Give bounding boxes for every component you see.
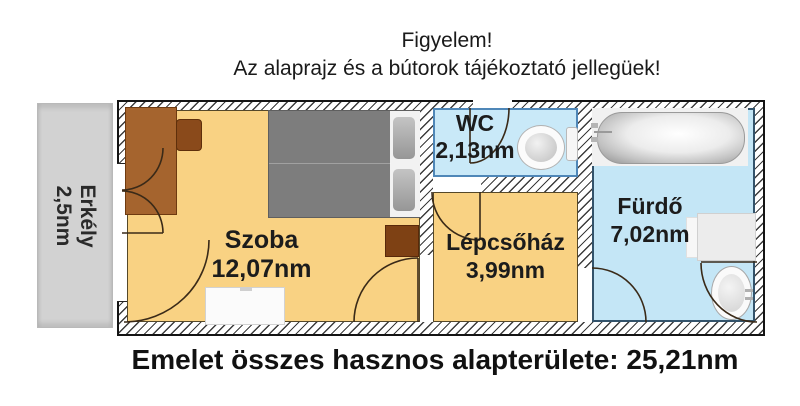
wc-area: 2,13nm [419, 137, 531, 164]
balcony-area: 2,5nm [51, 184, 75, 247]
notice-text: Figyelem! Az alaprajz és a bútorok tájék… [97, 27, 797, 83]
sink-screen-arc [701, 263, 757, 322]
room-label-staircase: Lépcsőház 3,99nm [433, 228, 578, 284]
bathroom-area: 7,02nm [572, 220, 728, 248]
room-label-bedroom: Szoba 12,07nm [119, 226, 404, 284]
wc-name: WC [419, 110, 531, 137]
bedroom-area: 12,07nm [119, 255, 404, 284]
bedroom-name: Szoba [119, 226, 404, 255]
staircase-area: 3,99nm [433, 256, 578, 284]
staircase-name: Lépcsőház [433, 228, 578, 256]
room-label-bathroom: Fürdő 7,02nm [572, 192, 728, 248]
floor-plan: Szoba 12,07nm WC 2,13nm Lépcsőház 3,99nm… [117, 100, 765, 336]
notice-line2: Az alaprajz és a bútorok tájékoztató jel… [97, 55, 797, 83]
bathroom-name: Fürdő [572, 192, 728, 220]
balcony-name: Erkély [75, 184, 99, 247]
bathroom-door-arc [592, 268, 646, 322]
room-label-wc: WC 2,13nm [419, 110, 531, 164]
room-label-balcony: Erkély 2,5nm [51, 184, 99, 247]
total-area-caption: Emelet összes hasznos alapterülete: 25,2… [105, 344, 765, 376]
room-balcony: Erkély 2,5nm [37, 103, 113, 328]
wardrobe-door-arc [122, 148, 163, 190]
notice-line1: Figyelem! [97, 27, 797, 55]
